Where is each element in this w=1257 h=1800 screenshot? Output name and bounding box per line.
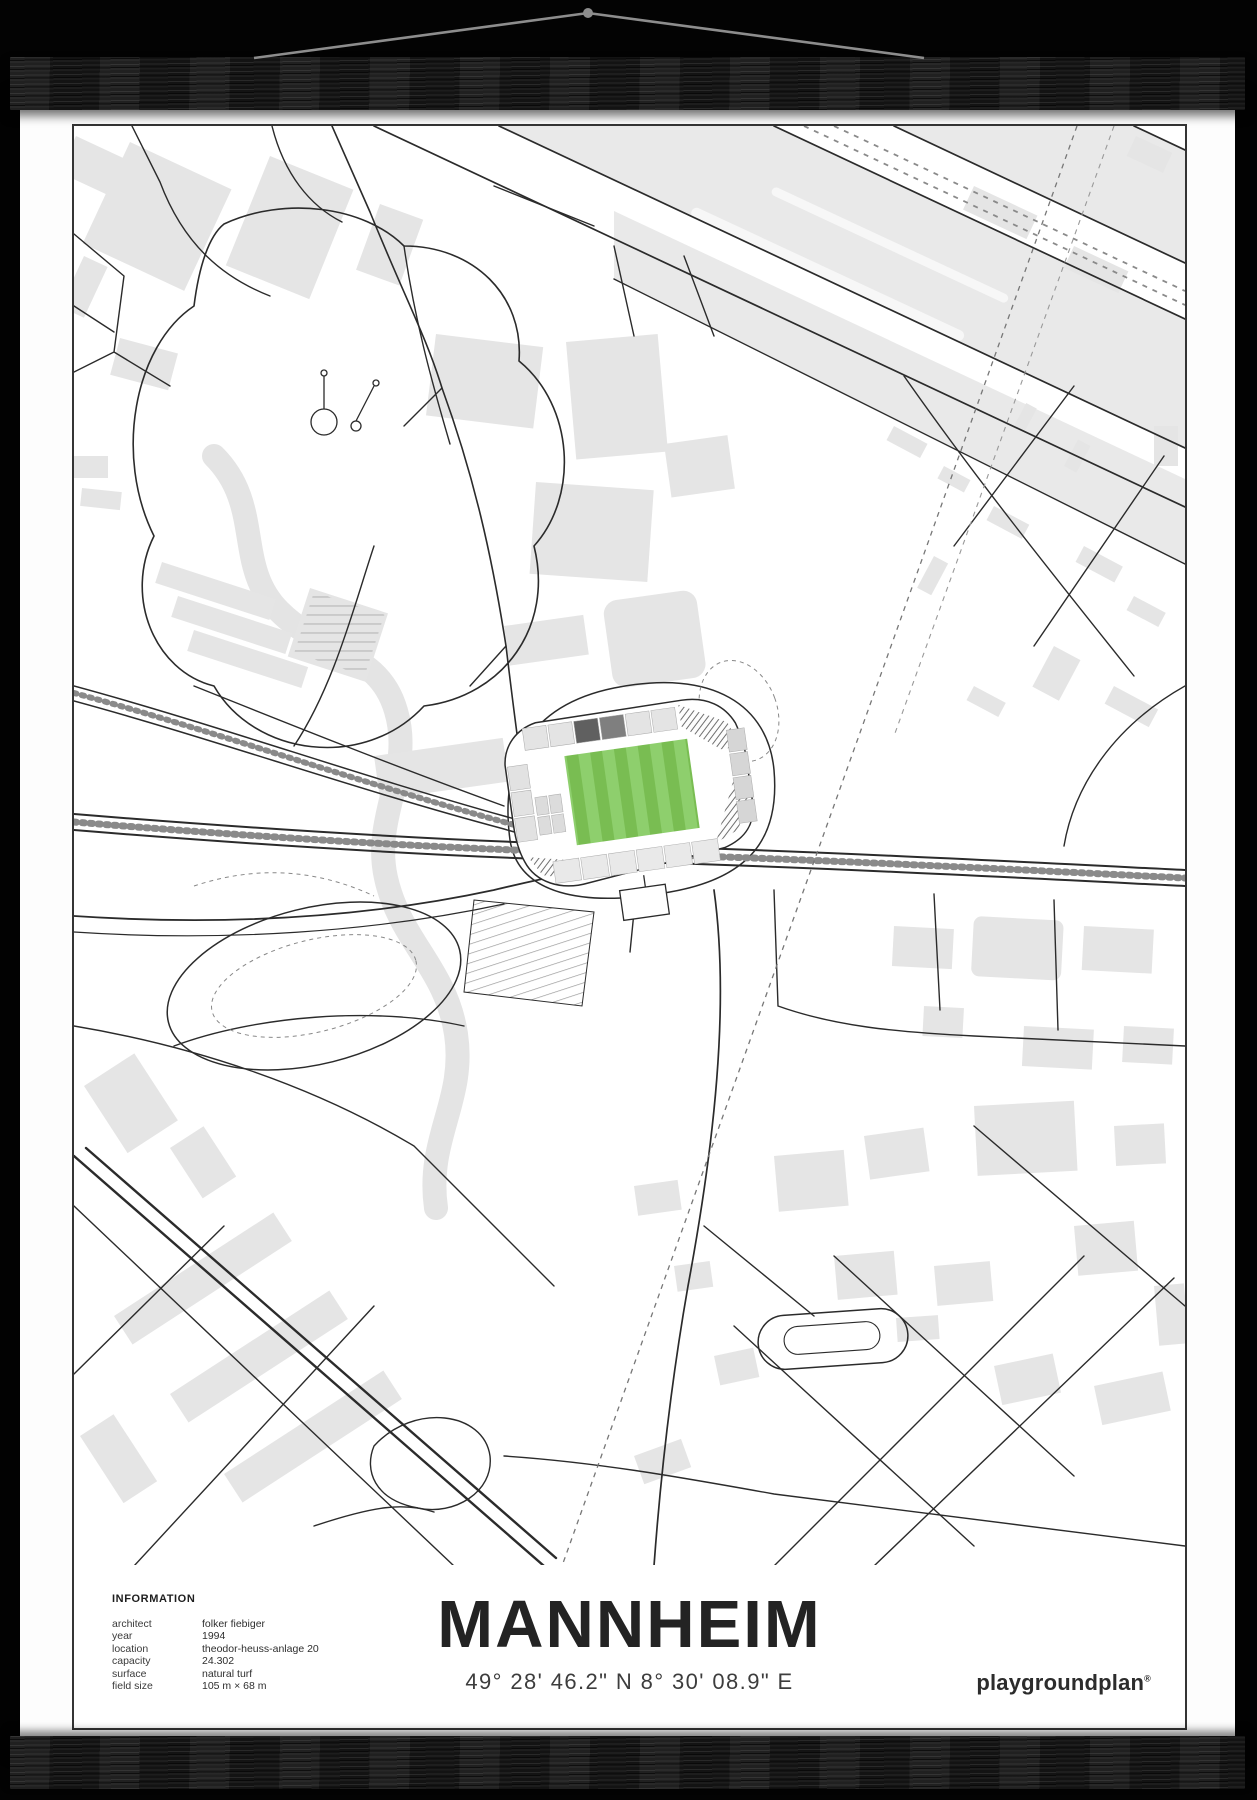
caption-band: INFORMATION architect folker fiebiger ye…: [74, 1565, 1185, 1728]
hanger-nail: [583, 8, 593, 18]
city-map: [74, 126, 1185, 1565]
hanger-string: [0, 0, 1257, 62]
top-rail: [10, 57, 1245, 110]
brand-logo: playgroundplan®: [976, 1670, 1151, 1696]
string-line: [254, 13, 924, 58]
bottom-rail: [10, 1736, 1245, 1789]
registered-mark-icon: ®: [1144, 1674, 1151, 1684]
poster: INFORMATION architect folker fiebiger ye…: [20, 108, 1235, 1740]
page-title: MANNHEIM: [74, 1591, 1185, 1658]
stadium-annex: [620, 884, 670, 920]
product-scene: INFORMATION architect folker fiebiger ye…: [0, 0, 1257, 1800]
map-frame: INFORMATION architect folker fiebiger ye…: [72, 124, 1187, 1730]
brand-name: playgroundplan: [976, 1670, 1144, 1695]
stadium-pitch: [564, 739, 699, 845]
